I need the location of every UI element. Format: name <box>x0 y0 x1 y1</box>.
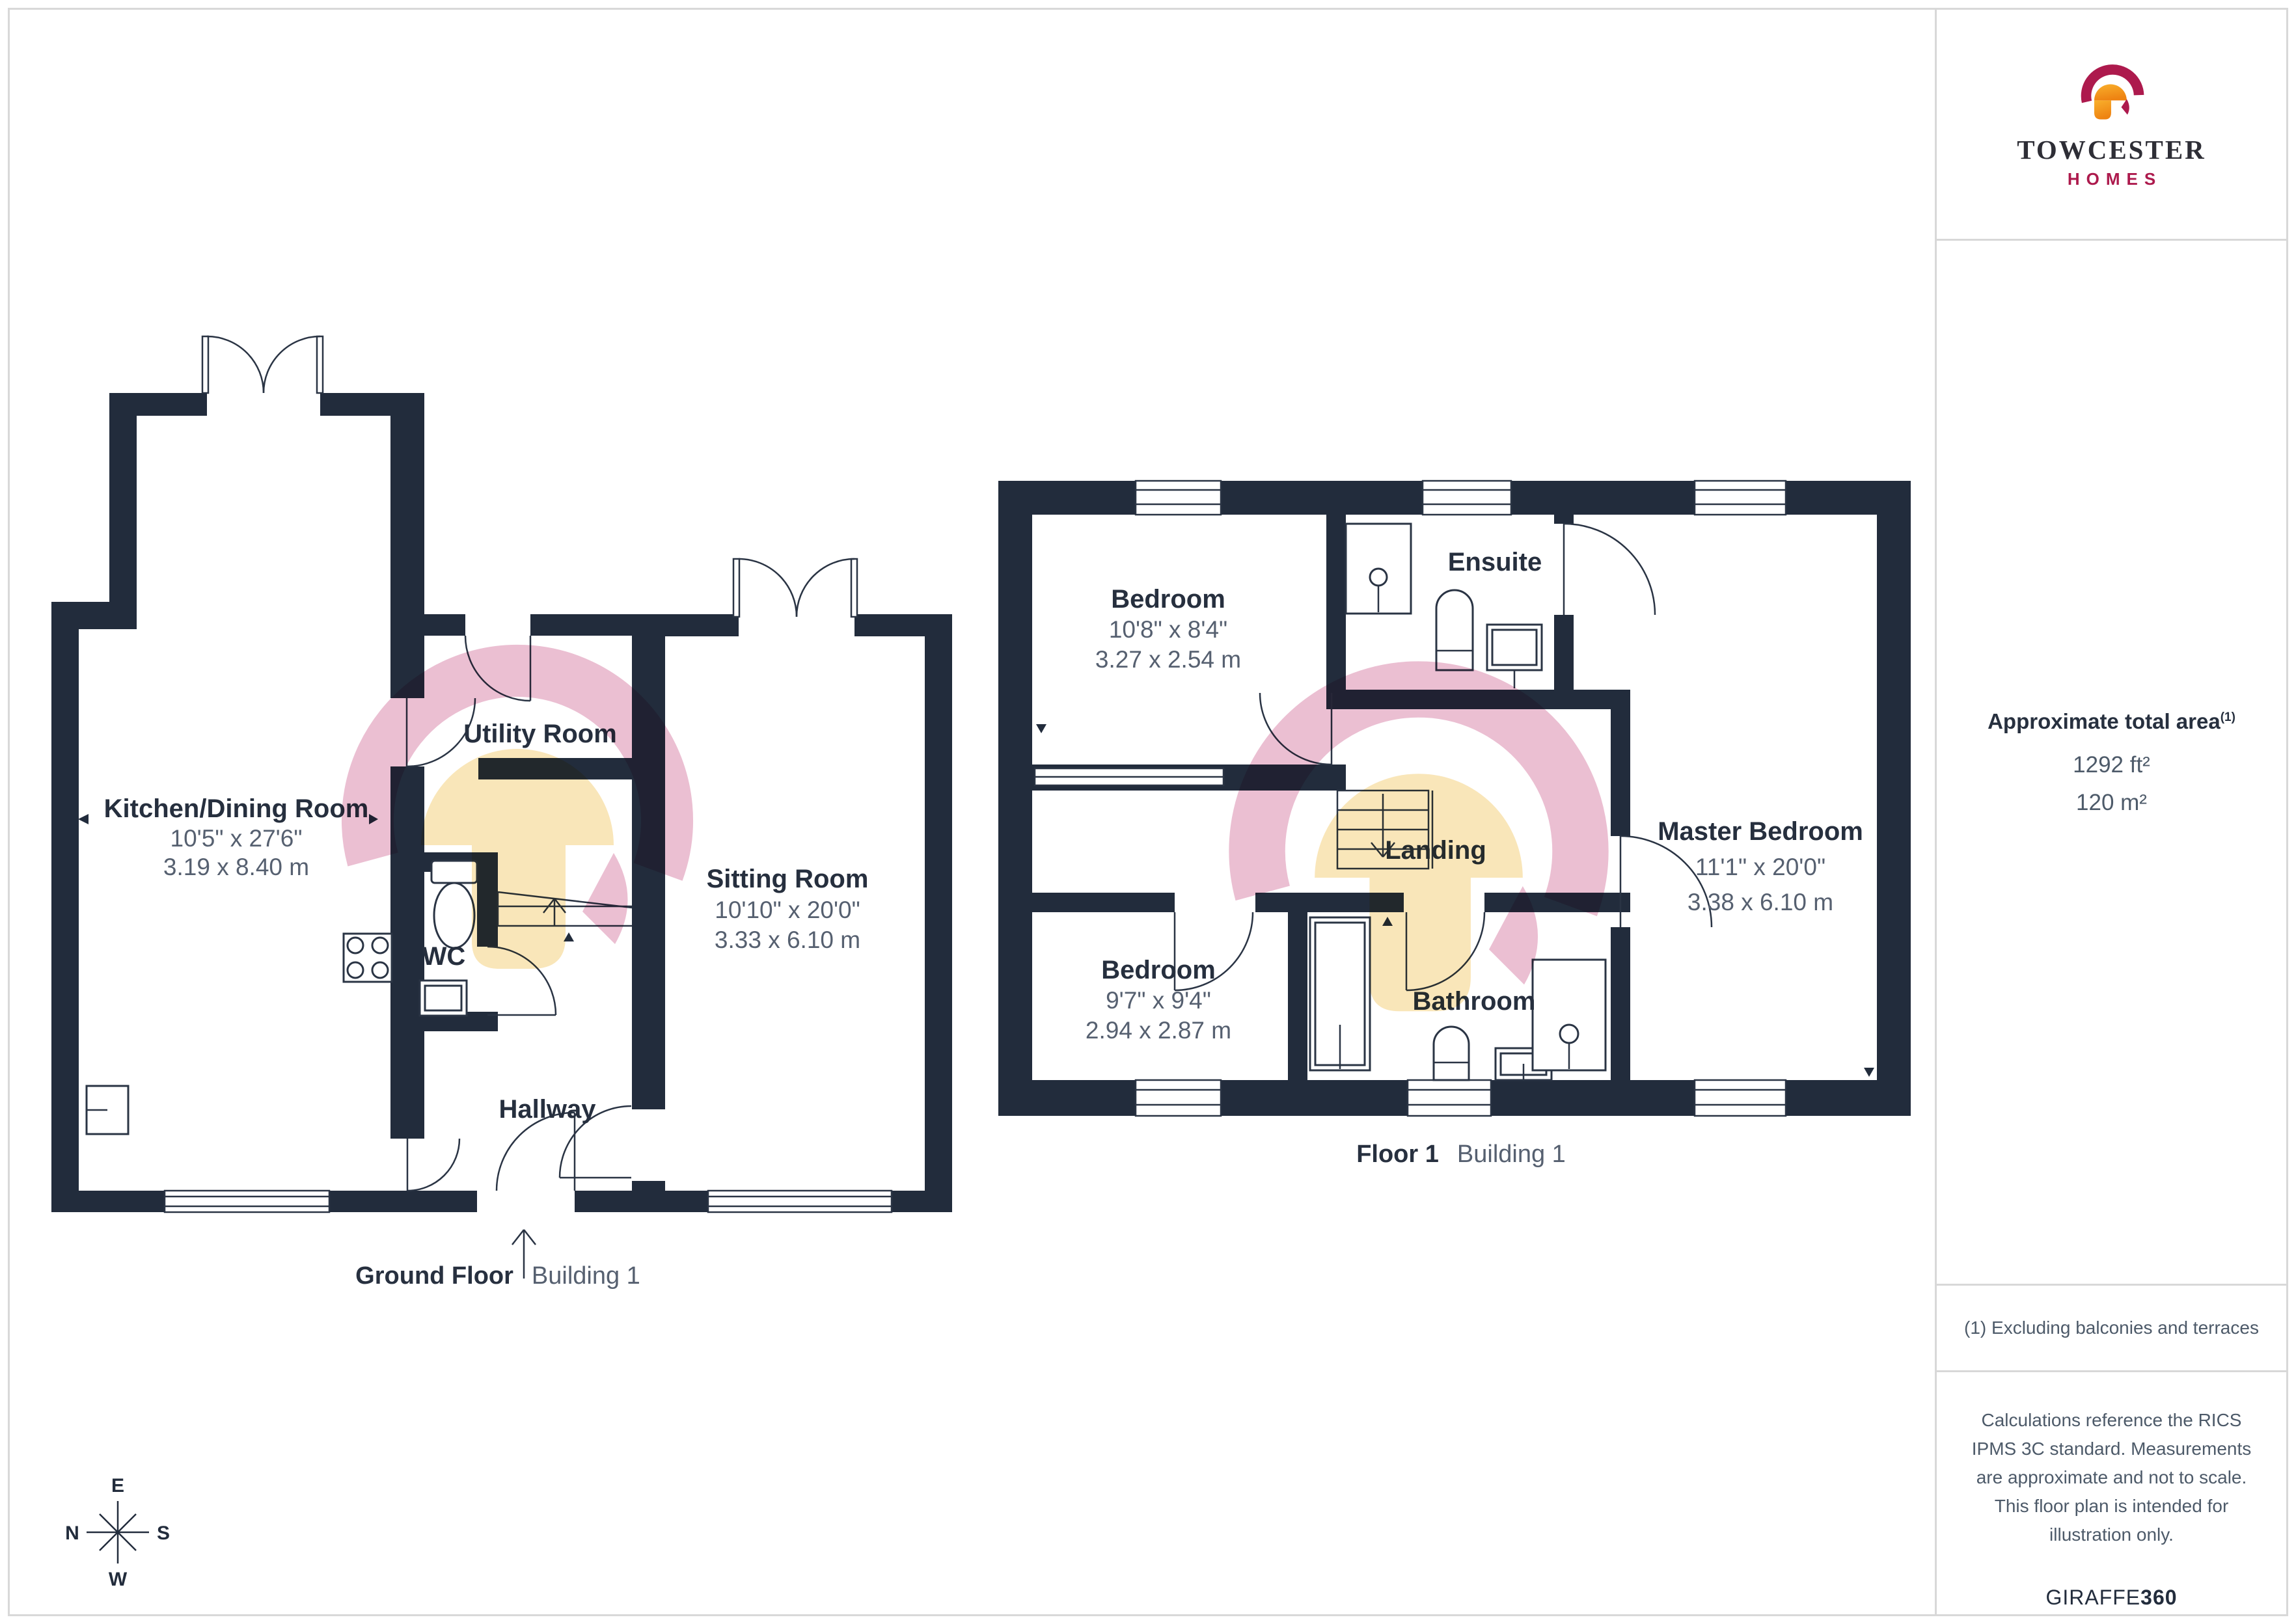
compass-east-label: E <box>111 1475 124 1496</box>
floorplan-ground: Kitchen/Dining Room 10'5" x 27'6" 3.19 x… <box>10 296 986 1324</box>
room-label-sitting: Sitting Room <box>707 865 869 893</box>
room-dim-imperial-kitchen: 10'5" x 27'6" <box>171 825 303 852</box>
ground-floor-caption-subtitle: Building 1 <box>532 1262 640 1290</box>
room-label-landing: Landing <box>1385 836 1486 865</box>
compass-north-label: N <box>65 1522 79 1544</box>
total-area-footnote-marker: (1) <box>2221 710 2235 724</box>
room-label-bedroom-front: Bedroom <box>1111 585 1225 614</box>
page-border: Kitchen/Dining Room 10'5" x 27'6" 3.19 x… <box>8 8 2288 1616</box>
room-label-master-bedroom: Master Bedroom <box>1658 817 1863 846</box>
ground-direction-markers <box>78 814 574 941</box>
bathroom-shower-icon <box>1533 960 1606 1070</box>
wc-sink-icon <box>420 981 467 1016</box>
giraffe360-credit-suffix: 360 <box>2140 1586 2177 1609</box>
brand-title: TOWCESTER <box>2017 134 2206 165</box>
room-label-bedroom-back: Bedroom <box>1101 956 1216 984</box>
bathroom-toilet-icon <box>1434 1027 1469 1080</box>
total-area-metric: 120 m² <box>2076 790 2147 816</box>
disclaimer-block: Calculations reference the RICS IPMS 3C … <box>1937 1370 2286 1614</box>
footnote-block: (1) Excluding balconies and terraces <box>1937 1284 2286 1370</box>
total-area-title-text: Approximate total area <box>1988 709 2221 733</box>
brand-helmet-icon <box>2078 60 2146 128</box>
info-sidebar: TOWCESTER HOMES Approximate total area(1… <box>1935 10 2286 1614</box>
ground-french-doors <box>202 336 857 617</box>
room-label-ensuite: Ensuite <box>1448 548 1542 576</box>
ensuite-sink-icon <box>1487 625 1542 688</box>
room-dim-imperial-sitting: 10'10" x 20'0" <box>715 897 860 923</box>
compass-south-label: S <box>157 1522 170 1544</box>
wc-toilet-icon <box>431 861 477 948</box>
ground-floor-caption-title: Ground Floor <box>355 1262 513 1290</box>
ground-windows <box>165 1191 892 1212</box>
floor1-caption-subtitle: Building 1 <box>1457 1141 1566 1168</box>
brand-subtitle: HOMES <box>2061 169 2162 189</box>
footnote-text: (1) Excluding balconies and terraces <box>1964 1318 2259 1338</box>
floor1-caption: Floor 1Building 1 <box>986 1141 1936 1169</box>
ground-floor-caption: Ground FloorBuilding 1 <box>10 1262 986 1290</box>
disclaimer-text: Calculations reference the RICS IPMS 3C … <box>1972 1406 2252 1549</box>
room-label-wc: WC <box>422 942 466 971</box>
ensuite-toilet-icon <box>1436 590 1473 670</box>
kitchen-unit-icon <box>87 1086 128 1134</box>
floor1-caption-title: Floor 1 <box>1356 1141 1439 1168</box>
room-dim-metric-bedroom-back: 2.94 x 2.87 m <box>1086 1017 1231 1044</box>
kitchen-hob-icon <box>344 934 392 982</box>
floor1-room-labels: Bedroom 10'8" x 8'4" 3.27 x 2.54 m Ensui… <box>1086 548 1863 1044</box>
room-dim-metric-bedroom-front: 3.27 x 2.54 m <box>1095 646 1241 673</box>
compass-west-label: W <box>109 1569 128 1590</box>
ensuite-shower-icon <box>1346 524 1411 614</box>
total-area-imperial: 1292 ft² <box>2073 752 2150 778</box>
room-dim-imperial-bedroom-back: 9'7" x 9'4" <box>1106 987 1211 1014</box>
room-dim-metric-master: 3.38 x 6.10 m <box>1688 889 1833 915</box>
room-dim-imperial-master: 11'1" x 20'0" <box>1695 854 1825 880</box>
room-label-kitchen-dining: Kitchen/Dining Room <box>104 794 369 823</box>
total-area-title: Approximate total area(1) <box>1988 709 2235 734</box>
room-label-hallway: Hallway <box>499 1095 597 1124</box>
room-label-utility: Utility Room <box>463 720 617 748</box>
floorplan-floor1: Bedroom 10'8" x 8'4" 3.27 x 2.54 m Ensui… <box>986 459 1949 1200</box>
giraffe360-credit: GIRAFFE360 <box>2045 1586 2177 1610</box>
room-dim-metric-kitchen: 3.19 x 8.40 m <box>163 854 309 880</box>
compass-rose-icon: E N S W <box>53 1467 183 1597</box>
room-dim-imperial-bedroom-front: 10'8" x 8'4" <box>1109 616 1227 643</box>
giraffe360-credit-brand: GIRAFFE <box>2045 1586 2140 1609</box>
room-dim-metric-sitting: 3.33 x 6.10 m <box>715 927 860 953</box>
bathroom-wardrobe-icon <box>1310 917 1370 1070</box>
brand-logo: TOWCESTER HOMES <box>1937 10 2286 241</box>
room-label-bathroom: Bathroom <box>1413 987 1536 1016</box>
total-area-block: Approximate total area(1) 1292 ft² 120 m… <box>1937 241 2286 1284</box>
ground-stairs <box>498 892 632 926</box>
